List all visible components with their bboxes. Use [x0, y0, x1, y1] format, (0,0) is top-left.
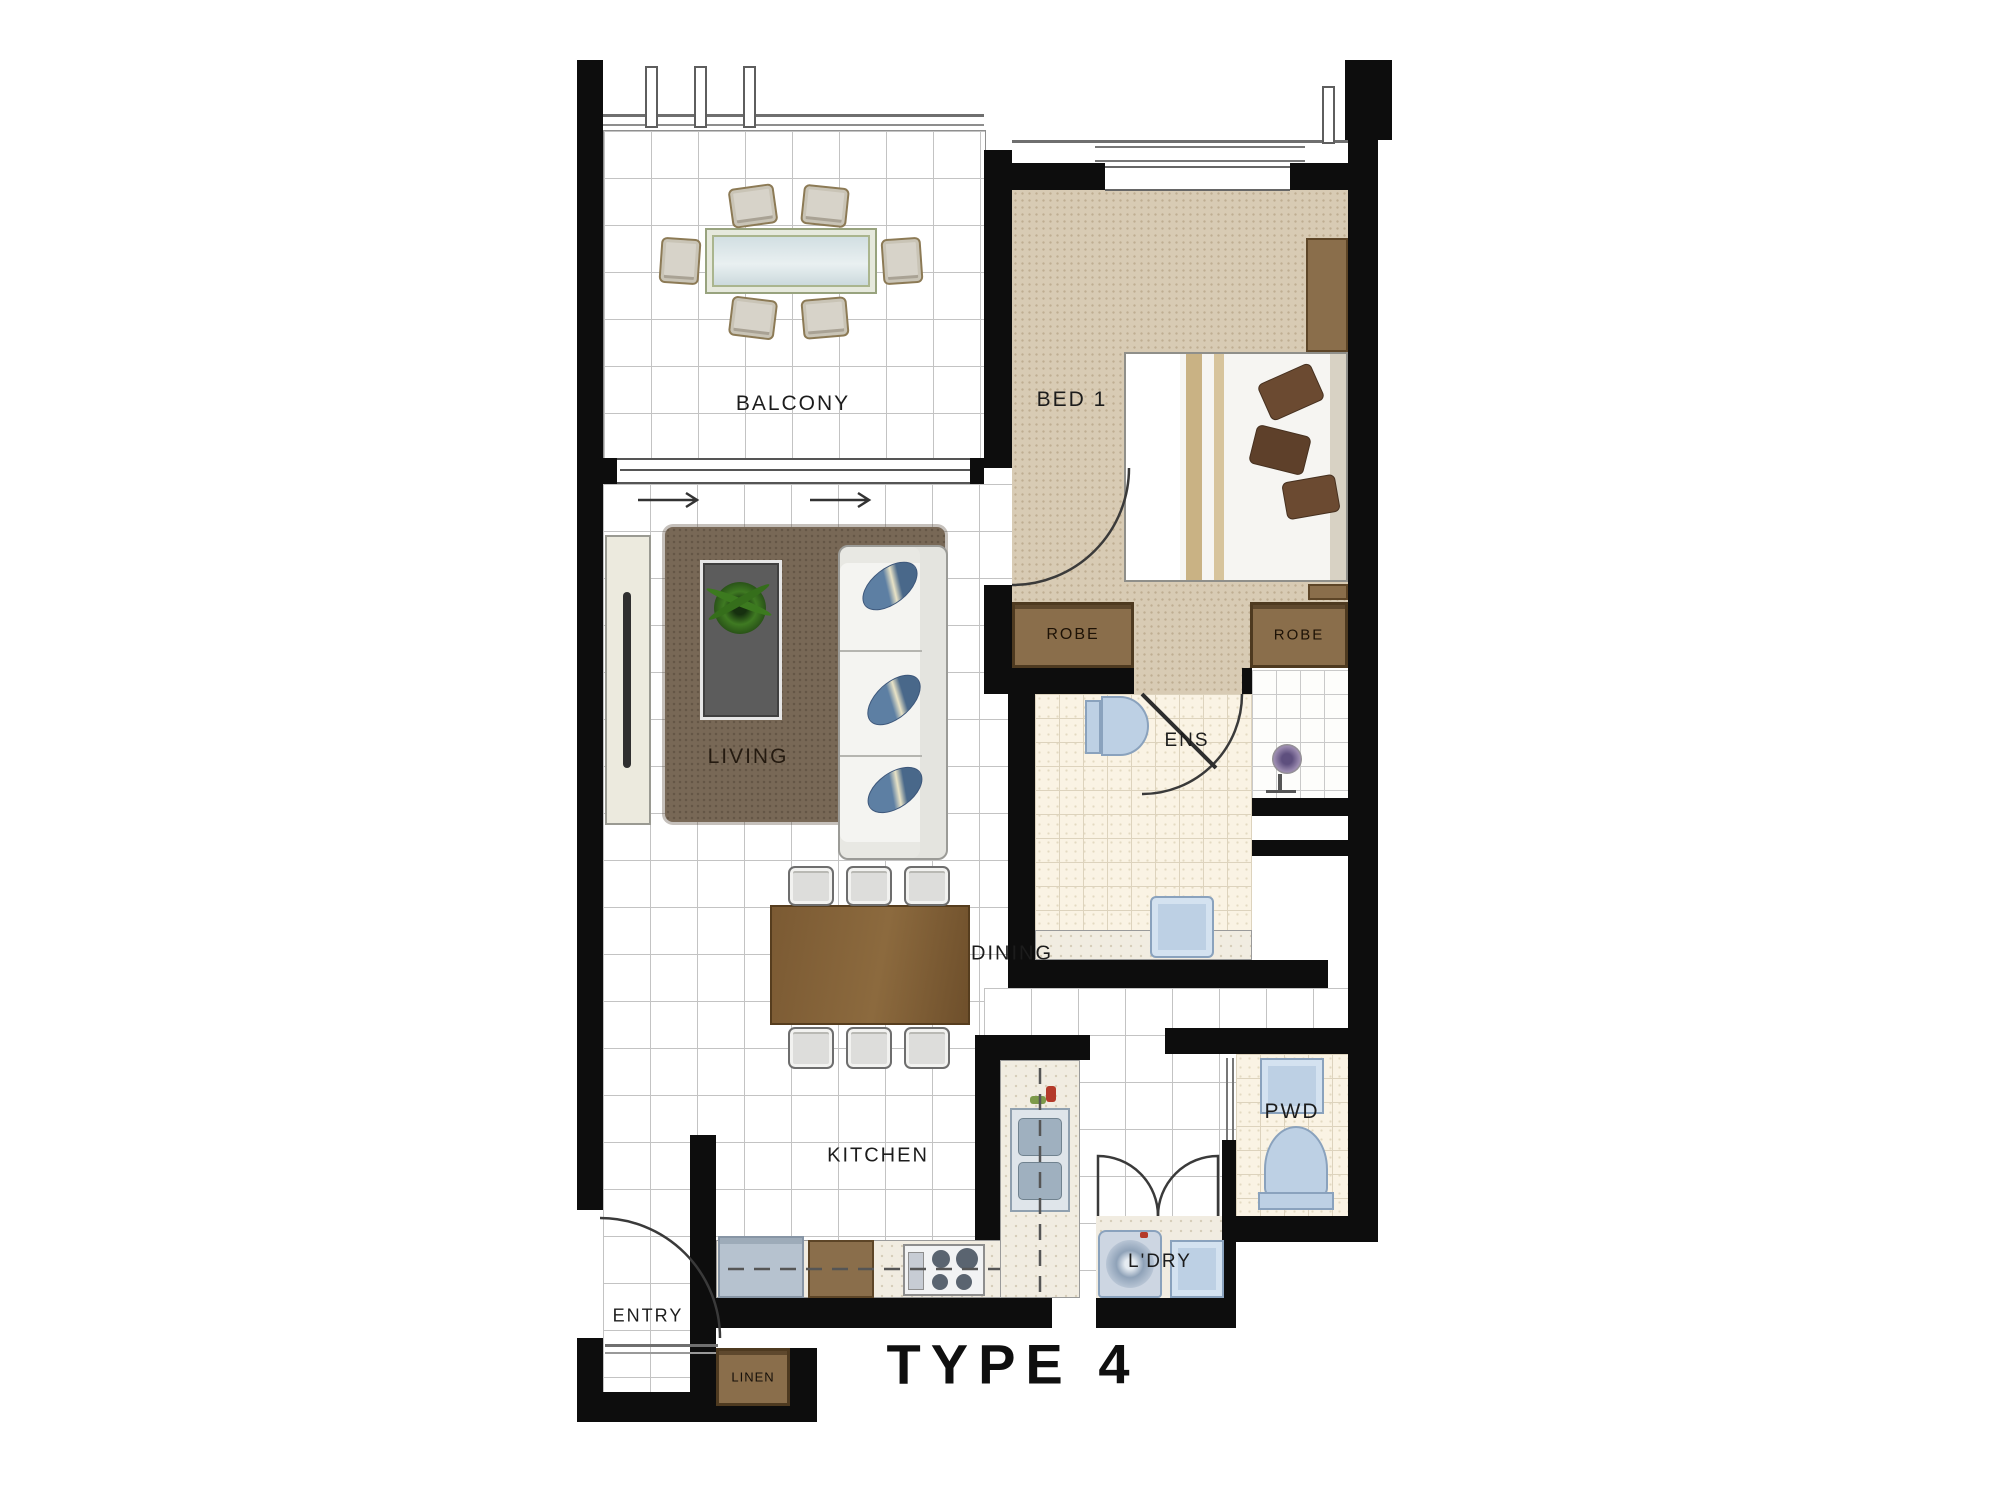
room-label-bed1: BED 1: [1037, 388, 1108, 412]
pwd-slider-door: [1227, 1058, 1233, 1140]
room-label-living: LIVING: [708, 745, 789, 769]
room-label-robe-right: ROBE: [1274, 627, 1325, 644]
room-label-ens: ENS: [1164, 730, 1209, 752]
room-label-pwd: PWD: [1265, 1100, 1320, 1124]
room-label-balcony: BALCONY: [736, 392, 850, 416]
room-label-entry: ENTRY: [613, 1306, 684, 1327]
room-label-linen: LINEN: [731, 1370, 774, 1385]
laundry-door-left: [1098, 1156, 1158, 1216]
slider-arrow-icon: [810, 493, 869, 507]
slider-arrow-icon: [638, 493, 697, 507]
plan-title: TYPE 4: [887, 1332, 1140, 1397]
door-swing-layer: [0, 0, 2000, 1500]
laundry-door-right: [1158, 1156, 1218, 1216]
room-label-laundry: L'DRY: [1128, 1251, 1192, 1273]
room-label-robe-left: ROBE: [1046, 626, 1099, 644]
floorplan-page: BALCONY BED 1 LIVING ROBE ROBE ENS DININ…: [0, 0, 2000, 1500]
bed1-door-arc: [1012, 468, 1129, 585]
room-label-dining: DINING: [971, 943, 1053, 966]
room-label-kitchen: KITCHEN: [827, 1145, 929, 1168]
